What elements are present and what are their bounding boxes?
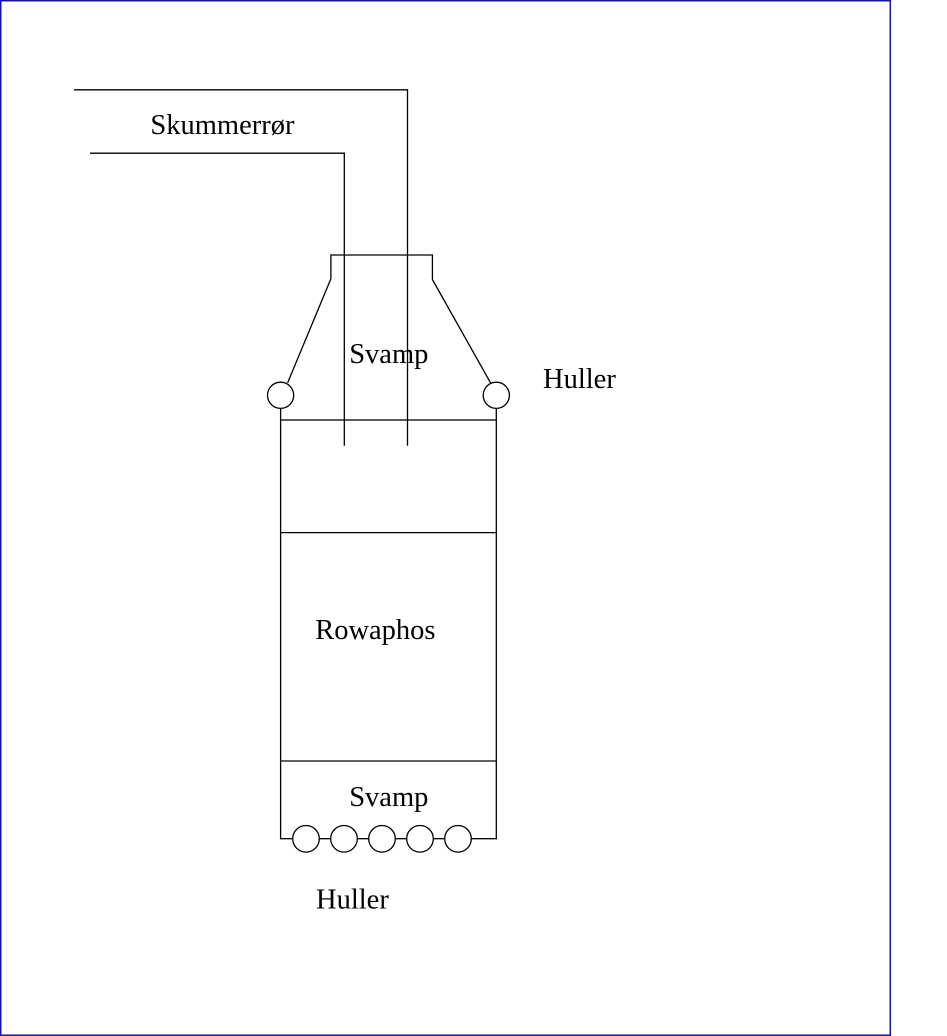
svg-text:Svamp: Svamp xyxy=(349,339,428,370)
svg-text:Rowaphos: Rowaphos xyxy=(315,615,435,646)
svg-text:Huller: Huller xyxy=(543,364,616,395)
svg-text:Huller: Huller xyxy=(316,884,389,915)
svg-text:Skummerrør: Skummerrør xyxy=(150,110,295,141)
svg-text:Svamp: Svamp xyxy=(349,782,428,813)
